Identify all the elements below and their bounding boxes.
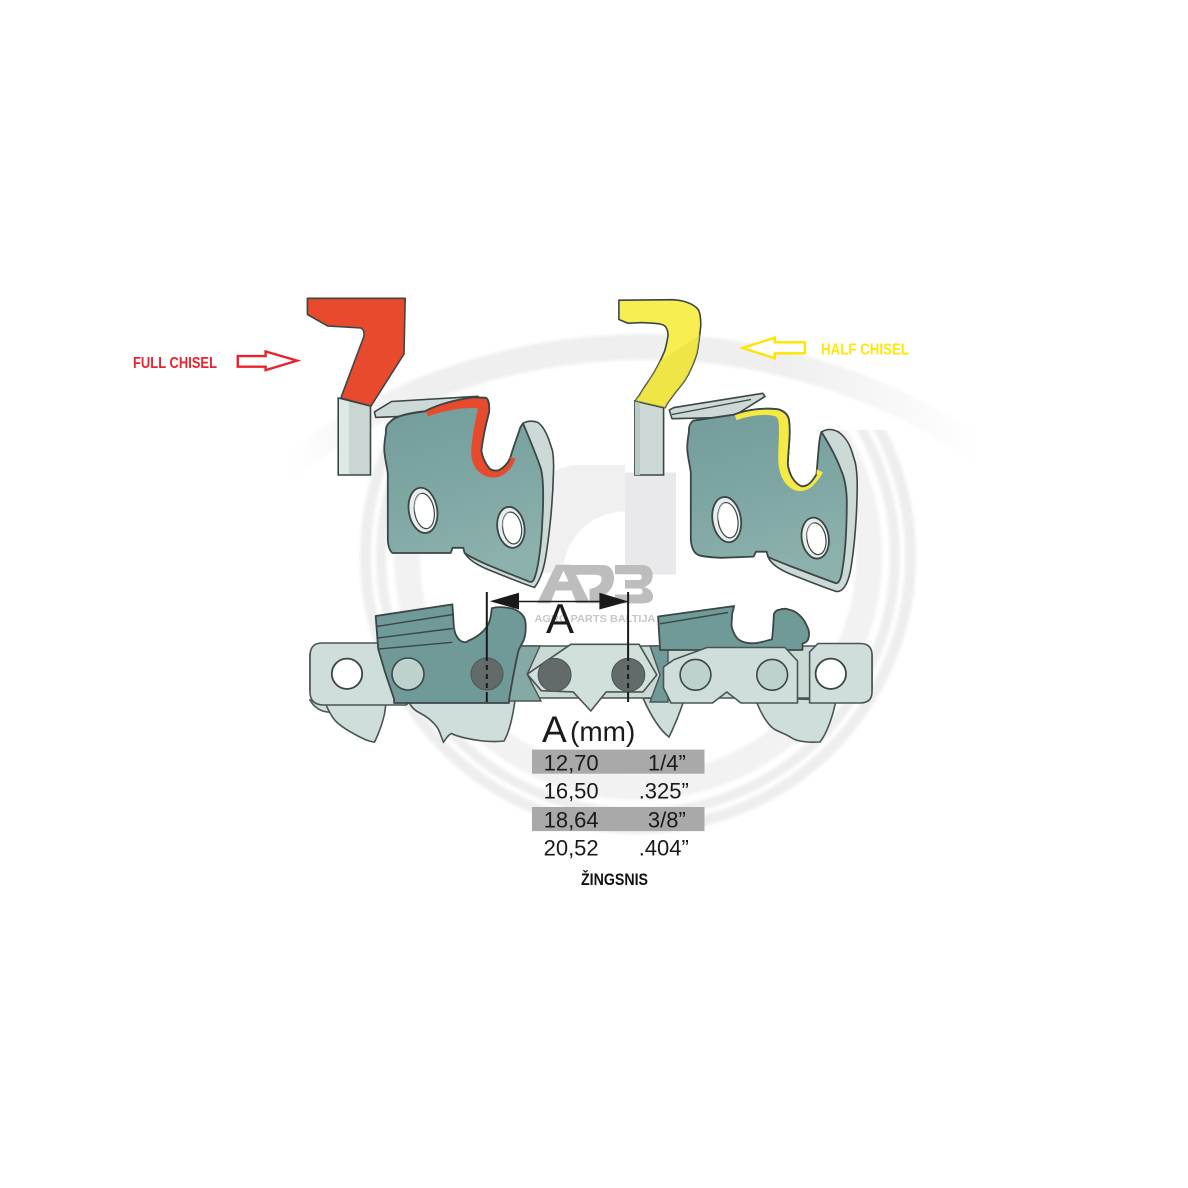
svg-text:.325”: .325” [639, 778, 689, 803]
svg-text:FULL CHISEL: FULL CHISEL [133, 355, 217, 372]
svg-text:A: A [542, 709, 567, 750]
svg-text:3/8”: 3/8” [648, 808, 686, 833]
svg-text:ŽINGSNIS: ŽINGSNIS [581, 870, 648, 889]
svg-text:HALF CHISEL: HALF CHISEL [821, 342, 909, 359]
svg-text:A: A [546, 595, 574, 642]
svg-text:(mm): (mm) [570, 716, 635, 747]
svg-text:12,70: 12,70 [544, 750, 599, 775]
svg-text:.404”: .404” [639, 835, 689, 860]
svg-text:20,52: 20,52 [544, 835, 599, 860]
svg-text:16,50: 16,50 [544, 778, 599, 803]
svg-text:18,64: 18,64 [544, 808, 599, 833]
svg-text:1/4”: 1/4” [648, 750, 686, 775]
